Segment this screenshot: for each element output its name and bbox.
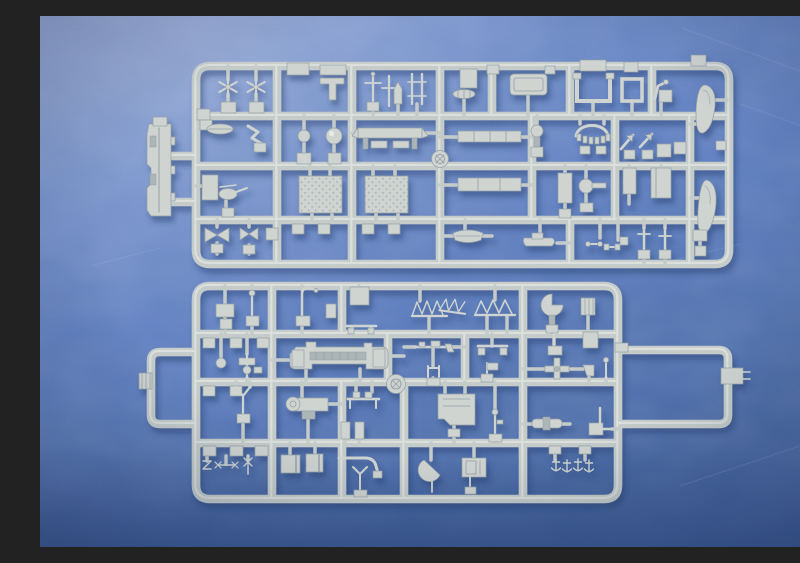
photo-canvas: [40, 16, 800, 547]
grain-overlay: [40, 16, 800, 547]
photo: Photograph of two light-gray injection-m…: [40, 16, 800, 547]
